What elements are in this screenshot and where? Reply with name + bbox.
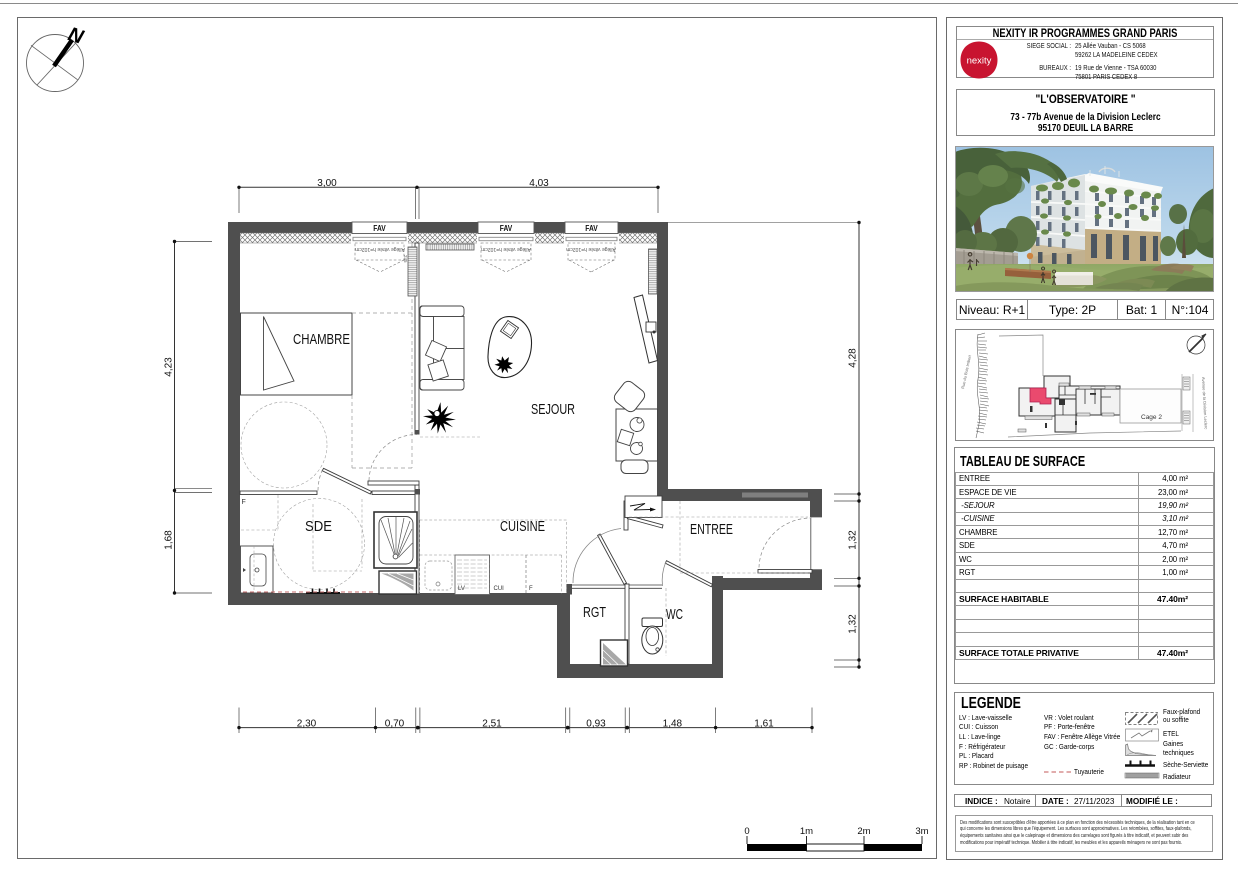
svg-text:nexity: nexity [967,56,992,67]
svg-text:3,00: 3,00 [317,178,337,189]
svg-text:Allège vitrée h=102cm: Allège vitrée h=102cm [566,246,616,252]
svg-text:LV: LV [458,586,465,592]
svg-text:WC: WC [666,606,683,623]
svg-text:0,70: 0,70 [385,719,405,730]
svg-text:FAV: FAV [373,224,386,233]
svg-text:Allège vitrée h=102cm: Allège vitrée h=102cm [481,246,531,252]
svg-text:1,68: 1,68 [164,530,175,550]
svg-text:CUI: CUI [494,586,505,592]
svg-text:1,61: 1,61 [754,719,774,730]
svg-text:245: 245 [403,255,408,263]
svg-text:Rue du Bois Imbert: Rue du Bois Imbert [960,354,972,389]
svg-text:2,30: 2,30 [297,719,317,730]
svg-text:FAV: FAV [585,224,598,233]
svg-text:4,23: 4,23 [164,357,175,377]
svg-text:0: 0 [744,826,749,837]
svg-text:4,03: 4,03 [529,178,549,189]
svg-text:Avenue de la Division Leclerc: Avenue de la Division Leclerc [1201,377,1209,430]
svg-text:3m: 3m [915,826,928,837]
svg-text:0,93: 0,93 [586,719,606,730]
svg-text:Cage 2: Cage 2 [1141,414,1162,421]
svg-text:CUISINE: CUISINE [500,518,545,535]
svg-text:2m: 2m [857,826,870,837]
svg-text:1,32: 1,32 [848,614,859,634]
svg-text:ENTREE: ENTREE [690,521,733,538]
svg-text:N: N [65,23,86,49]
svg-text:RGT: RGT [583,604,606,621]
svg-text:4,28: 4,28 [848,348,859,368]
svg-text:1m: 1m [800,826,813,837]
svg-text:F: F [529,586,533,592]
svg-text:FAV: FAV [500,224,513,233]
svg-text:SEJOUR: SEJOUR [531,401,575,418]
svg-text:SDE: SDE [305,518,332,535]
svg-text:1,48: 1,48 [663,719,683,730]
svg-text:CHAMBRE: CHAMBRE [293,331,350,348]
svg-text:Allège vitrée h=102cm: Allège vitrée h=102cm [355,246,405,252]
svg-text:2,51: 2,51 [482,719,502,730]
svg-text:F: F [242,499,246,506]
svg-text:1,32: 1,32 [848,530,859,550]
